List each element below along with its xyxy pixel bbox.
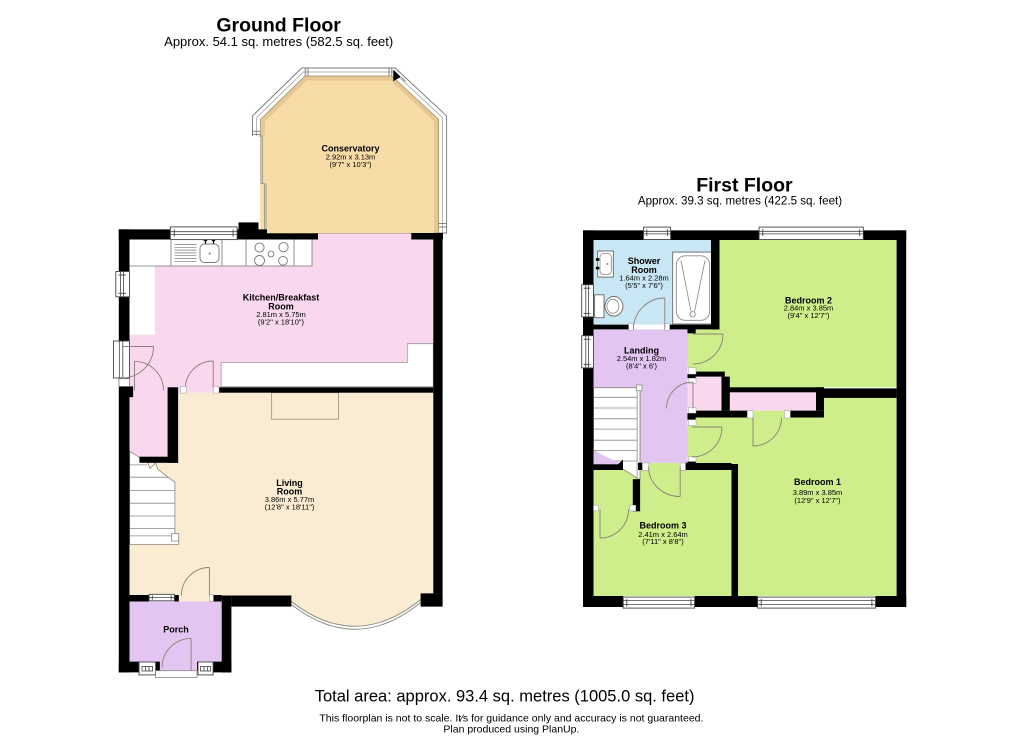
svg-text:Approx. 54.1 sq. metres (582.5: Approx. 54.1 sq. metres (582.5 sq. feet): [164, 34, 393, 49]
svg-text:(12'9" x 12'7"): (12'9" x 12'7"): [794, 496, 841, 505]
svg-text:(9'4" x 12'7"): (9'4" x 12'7"): [788, 311, 830, 320]
svg-text:Porch: Porch: [163, 625, 189, 635]
svg-text:(5'5" x 7'6"): (5'5" x 7'6"): [625, 281, 663, 290]
svg-text:(9'2" x 18'10"): (9'2" x 18'10"): [258, 317, 305, 326]
svg-text:Total area: approx. 93.4 sq. m: Total area: approx. 93.4 sq. metres (100…: [315, 688, 695, 706]
svg-text:Plan produced using PlanUp.: Plan produced using PlanUp.: [443, 724, 579, 736]
svg-text:Approx. 39.3 sq. metres (422.5: Approx. 39.3 sq. metres (422.5 sq. feet): [638, 195, 842, 208]
svg-text:(8'4" x 6'): (8'4" x 6'): [626, 362, 657, 371]
svg-text:First Floor: First Floor: [696, 175, 793, 197]
svg-text:Bedroom 3: Bedroom 3: [639, 521, 686, 531]
svg-text:(12'8" x 18'11"): (12'8" x 18'11"): [265, 503, 315, 512]
svg-text:(7'11" x 8'8"): (7'11" x 8'8"): [642, 537, 684, 546]
svg-text:Bedroom 1: Bedroom 1: [794, 477, 841, 487]
svg-text:(9'7" x 10'3"): (9'7" x 10'3"): [330, 160, 372, 169]
